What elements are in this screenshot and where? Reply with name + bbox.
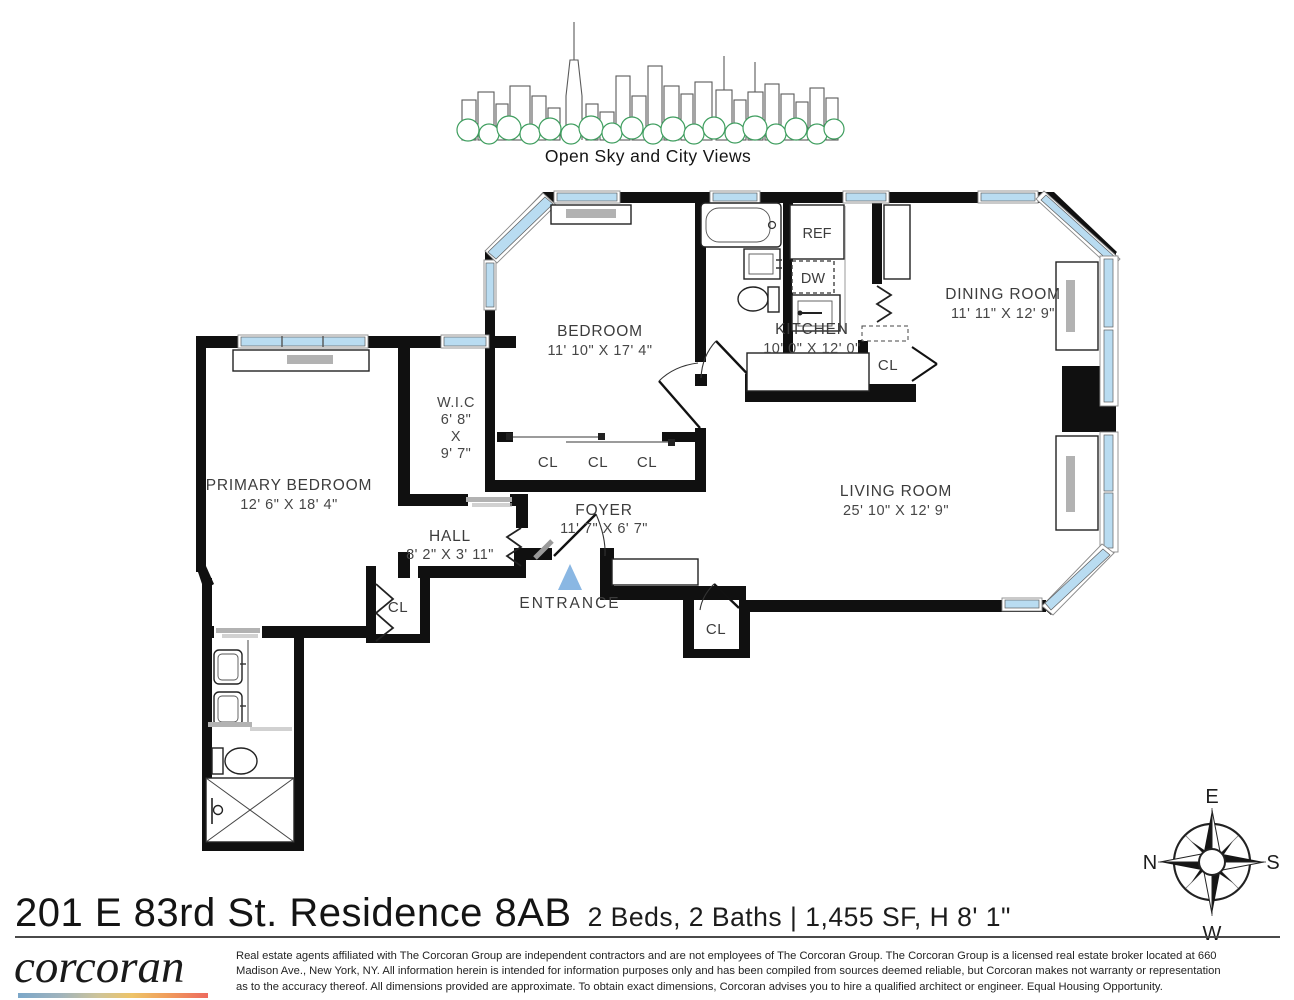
entrance-arrow-icon [558, 564, 582, 590]
foyer-dims: 11' 7" X 6' 7" [560, 521, 648, 537]
dining-radiator [1056, 262, 1098, 350]
city-skyline-sketch: Open Sky and City Views [457, 22, 844, 166]
corcoran-gradient-bar [18, 993, 208, 998]
primary-ac-unit [233, 350, 369, 371]
compass-west: W [1203, 923, 1222, 945]
hall-label: HALL [429, 528, 471, 545]
entrance-label: ENTRANCE [519, 595, 620, 612]
disclaimer-line-3: as to the accuracy thereof. All dimensio… [236, 980, 1294, 995]
living-room-dims: 25' 10" X 12' 9" [843, 503, 949, 519]
primary-bathroom-fixtures [206, 640, 294, 842]
primary-bedroom-dims: 12' 6" X 18' 4" [240, 497, 338, 513]
closet-label-kitchen: CL [878, 357, 898, 374]
disclaimer-line-1: Real estate agents affiliated with The C… [236, 949, 1294, 964]
title-row: 201 E 83rd St. Residence 8AB 2 Beds, 2 B… [15, 891, 1011, 936]
floorplan-page: Open Sky and City Views [0, 0, 1294, 1000]
bedroom-ac-unit [551, 205, 631, 224]
wic-dim-2: 9' 7" [441, 446, 472, 462]
dishwasher-label: DW [801, 271, 825, 287]
corcoran-logo: corcoran [14, 944, 185, 991]
closet-label-3: CL [637, 454, 657, 471]
unit-specs: 2 Beds, 2 Baths | 1,455 SF, H 8' 1" [588, 902, 1011, 933]
primary-bedroom-label: PRIMARY BEDROOM [206, 477, 372, 494]
kitchen-label: KITCHEN [775, 321, 849, 338]
living-radiator [1056, 436, 1098, 530]
toilet-icon [738, 287, 779, 312]
page-title: 201 E 83rd St. Residence 8AB [15, 891, 572, 936]
refrigerator-label: REF [803, 226, 832, 242]
dining-cabinet [884, 205, 910, 279]
bedroom-dims: 11' 10" X 17' 4" [548, 343, 653, 359]
living-room-label: LIVING ROOM [840, 483, 952, 500]
bath-sink-icon [744, 249, 782, 279]
disclaimer-line-2: Madison Ave., New York, NY. All informat… [236, 964, 1294, 979]
dining-room-dims: 11' 11" X 12' 9" [951, 306, 1055, 322]
bathtub-icon [701, 203, 781, 247]
dishwasher-icon: DW [792, 261, 834, 293]
vanity-sink-1 [214, 650, 246, 684]
hall-dims: 8' 2" X 3' 11" [406, 547, 494, 563]
shower-icon [206, 778, 294, 842]
kitchen-closet-door [912, 347, 937, 381]
legal-disclaimer: Real estate agents affiliated with The C… [236, 949, 1294, 995]
radiator-units [233, 205, 1098, 585]
closet-label-living: CL [706, 621, 726, 638]
wic-dim-1: 6' 8" [441, 412, 472, 428]
kitchen-upper-cabinet [862, 326, 908, 341]
skyline-caption: Open Sky and City Views [545, 146, 751, 166]
compass-rose: E S W N [1143, 786, 1280, 945]
closet-label-1: CL [538, 454, 558, 471]
floorplan-svg: Open Sky and City Views [0, 0, 1294, 1000]
foyer-builtin [612, 559, 698, 585]
wic-dim-x: X [451, 429, 461, 445]
primary-toilet-icon [212, 748, 257, 774]
bedroom-door [659, 363, 700, 428]
closet-label-hall: CL [388, 599, 408, 616]
dining-accordion-door [877, 286, 891, 322]
kitchen-counter [747, 353, 869, 391]
foyer-label: FOYER [575, 502, 632, 519]
refrigerator-icon: REF [790, 205, 844, 259]
compass-east: E [1205, 786, 1218, 808]
vanity-sink-2 [214, 692, 246, 726]
bedroom-closet-track [506, 433, 675, 446]
compass-south: S [1266, 852, 1279, 874]
wic-label: W.I.C [437, 395, 475, 411]
bedroom-label: BEDROOM [557, 323, 643, 340]
footer-divider [15, 936, 1280, 938]
compass-north: N [1143, 852, 1157, 874]
closet-label-2: CL [588, 454, 608, 471]
kitchen-dims: 10' 0" X 12' 0" [763, 341, 861, 357]
dining-room-label: DINING ROOM [945, 286, 1061, 303]
